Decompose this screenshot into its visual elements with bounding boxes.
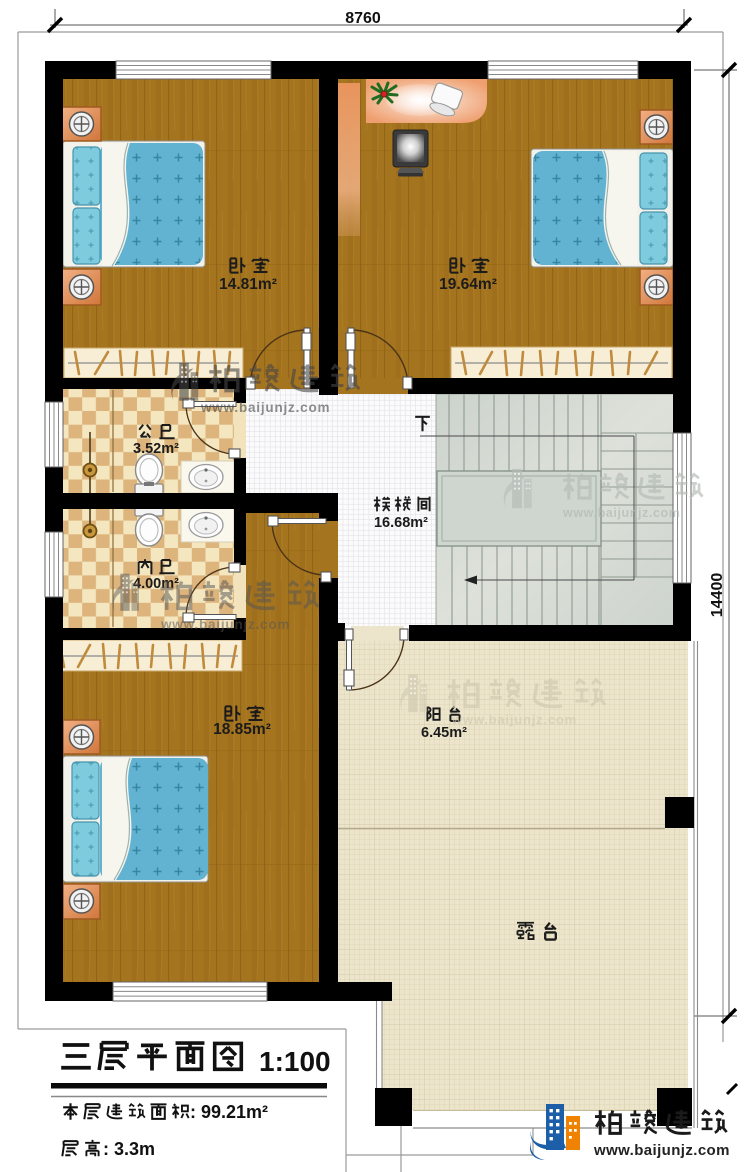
svg-text:18.85m²: 18.85m² (213, 721, 271, 738)
svg-text:www.baijunjz.com: www.baijunjz.com (451, 712, 577, 727)
svg-text:14400: 14400 (709, 573, 726, 618)
svg-text:8760: 8760 (345, 10, 381, 27)
svg-text:16.68m²: 16.68m² (374, 515, 428, 531)
svg-text:1:100: 1:100 (259, 1046, 331, 1077)
svg-text:: 3.3m: : 3.3m (103, 1139, 155, 1159)
svg-text:3.52m²: 3.52m² (133, 441, 179, 457)
svg-text:www.baijunjz.com: www.baijunjz.com (200, 400, 330, 415)
svg-text:www.baijunjz.com: www.baijunjz.com (562, 506, 680, 520)
svg-text:: 99.21m²: : 99.21m² (190, 1102, 268, 1122)
svg-text:6.45m²: 6.45m² (421, 725, 467, 741)
svg-text:www.baijunjz.com: www.baijunjz.com (593, 1142, 730, 1159)
svg-text:14.81m²: 14.81m² (219, 276, 277, 293)
svg-text:www.baijunjz.com: www.baijunjz.com (160, 617, 290, 632)
svg-text:19.64m²: 19.64m² (439, 276, 497, 293)
